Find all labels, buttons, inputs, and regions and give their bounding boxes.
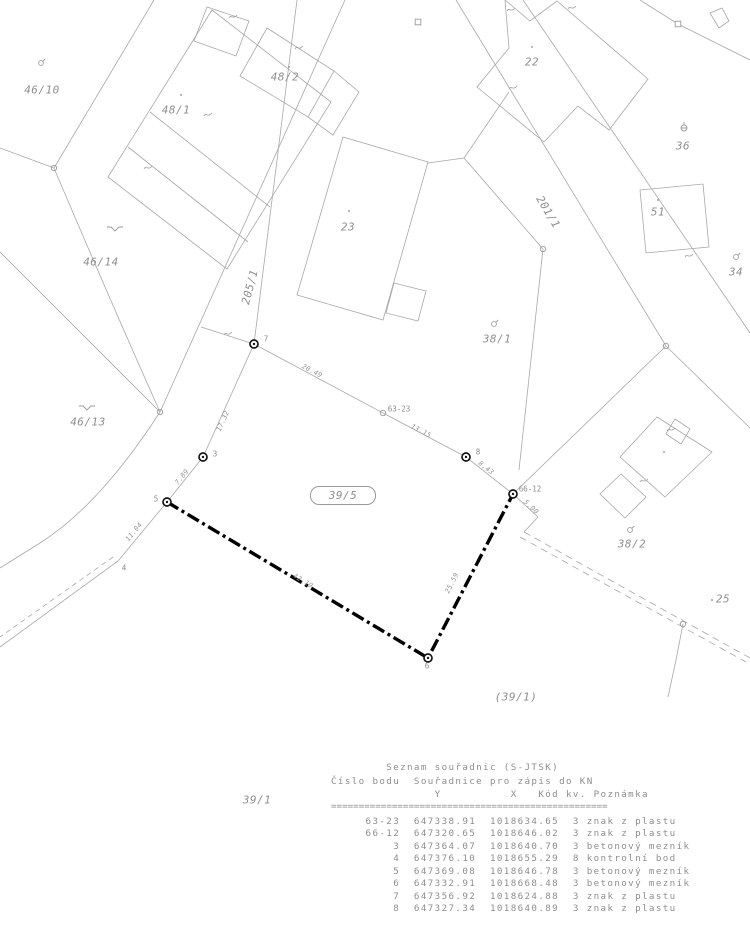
building-83-annex-sw [600, 474, 646, 518]
boundary-46-14 [0, 252, 160, 412]
building-number-dot [288, 66, 290, 68]
garden-symbol [628, 528, 633, 533]
building-83-annex-ne [666, 419, 690, 444]
point-number-label: 4 [122, 564, 127, 573]
parcel-label: 25 [716, 593, 730, 606]
fence-stub [668, 624, 683, 697]
building-48-1-wall-2 [128, 147, 248, 242]
merge-mark-symbol [640, 479, 648, 482]
table-column-header: Y X Kód kv. Poznámka [331, 789, 649, 800]
table-header: Číslo bodu Souřadnice pro zápis do KN [331, 776, 594, 787]
garden-symbol-tail [632, 526, 634, 528]
boundary-topright-v [640, 0, 750, 60]
merge-mark-symbol [685, 254, 693, 257]
map-symbols-layer [39, 6, 741, 532]
boundary-38-1-northwest [464, 158, 543, 470]
garden-symbol-tail [43, 59, 45, 61]
building-48-1-wall-1 [150, 112, 270, 207]
garden-symbol [734, 255, 739, 260]
parcel-label: 38/2 [618, 538, 647, 551]
parcel-label: 34 [729, 266, 743, 279]
building-number-dot [663, 451, 665, 453]
garden-symbol [39, 61, 44, 66]
table-row: 6 647332.91 1018668.48 3 betonový mezník [331, 878, 690, 889]
parcel-label: (39/1) [495, 691, 538, 704]
parcel-label: 46/13 [70, 416, 106, 429]
point-number-label: 8 [476, 448, 481, 457]
building-51-outline [640, 184, 709, 253]
boundary-46-10-b [54, 0, 154, 168]
building-48-1-outline [108, 10, 331, 269]
building-22-outline [477, 0, 648, 142]
survey-points-layer [51, 19, 713, 662]
table-row: 3 647364.07 1018640.70 3 betonový mezník [331, 841, 690, 852]
table-row: 5 647369.08 1018646.78 3 betonový mezník [331, 866, 690, 877]
merge-mark-symbol [507, 8, 515, 11]
table-row: 4 647376.10 1018655.29 8 kontrolní bod [331, 853, 677, 864]
boundary-38-east [666, 346, 750, 428]
parcel-39-5-north-boundary [254, 344, 513, 494]
meadow-symbol [79, 406, 95, 410]
table-row: 66-12 647320.65 1018646.02 3 znak z plas… [331, 828, 677, 839]
boundary-branch-23 [428, 92, 509, 163]
parcel-label: 46/10 [24, 84, 60, 97]
boundary-38-1-west [513, 346, 666, 494]
boundary-stone-point-center [427, 657, 429, 659]
merge-mark-symbol [144, 166, 152, 169]
garden-symbol [492, 322, 497, 327]
meadow-symbol [107, 227, 123, 231]
parcel-label: 23 [341, 221, 355, 234]
boundary-stone-point-center [512, 493, 514, 495]
point-number-label: 3 [213, 450, 218, 459]
building-83-outline [620, 417, 712, 497]
table-separator: ========================================… [331, 801, 608, 812]
highlighted-parcel-label: 39/5 [329, 489, 358, 502]
merge-mark-symbol [204, 113, 212, 116]
point-number-label: 6 [425, 662, 430, 671]
highlighted-parcel-39-5: 39/5 [310, 486, 376, 505]
boundary-stone-point-center [166, 501, 168, 503]
boundary-lines [0, 0, 750, 697]
building-number-dot [348, 210, 350, 212]
boundary-46-10-a [0, 148, 54, 168]
boundary-stone-point-center [465, 456, 467, 458]
parcel-label: 48/2 [271, 71, 300, 84]
point-number-label: 5 [154, 495, 159, 504]
well-symbol-bar [681, 122, 687, 128]
survey-square-point [415, 19, 421, 25]
building-number-dot [180, 94, 182, 96]
parcel-label: 51 [651, 206, 665, 219]
boundary-stone-point-center [202, 456, 204, 458]
table-row: 8 647327.34 1018640.89 3 znak z plastu [331, 903, 677, 914]
garden-symbol-tail [738, 253, 740, 255]
parcel-label: 36 [676, 140, 690, 153]
new-boundary-39-5-thick [167, 494, 513, 658]
table-title: Seznam souřadnic (S-JTSK) [331, 762, 559, 773]
parcel-label: 39/1 [243, 794, 272, 807]
parcel-label: 22 [525, 56, 539, 69]
boundary-topright-notch [710, 8, 729, 28]
table-row: 63-23 647338.91 1018634.65 3 znak z plas… [331, 816, 677, 827]
road-201-left-edge [456, 0, 666, 346]
road-cross-line [201, 327, 254, 344]
point-number-label: 63-23 [388, 405, 411, 414]
building-number-dot [657, 199, 659, 201]
point-number-label: 66-12 [519, 485, 542, 494]
building-number-dot [711, 599, 713, 601]
parcel-label: 48/1 [162, 104, 191, 117]
road-205-right-edge [0, 0, 297, 647]
road-205-fence-dashed [0, 557, 113, 637]
merge-mark-symbol [568, 6, 576, 9]
parcel-label: 46/14 [83, 256, 119, 269]
garden-symbol-tail [496, 320, 498, 322]
survey-square-point [675, 21, 681, 27]
boundary-stone-point-center [253, 343, 255, 345]
building-23-outline [297, 137, 428, 320]
building-number-dot [531, 46, 533, 48]
parcel-label: 38/1 [483, 333, 512, 346]
point-number-label: 7 [264, 335, 269, 344]
table-row: 7 647356.92 1018624.88 3 znak z plastu [331, 891, 677, 902]
building-48-annex-nw [194, 7, 249, 56]
cadastral-survey-sketch: 46/1048/148/2223623201/1513446/14205/138… [0, 0, 750, 925]
